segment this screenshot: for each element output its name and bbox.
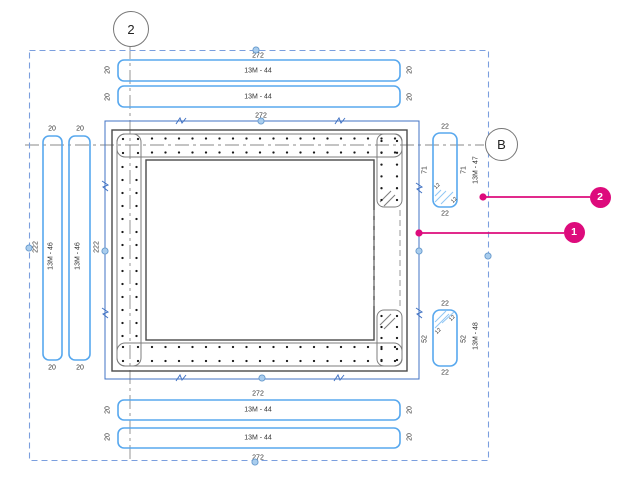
callout-balloon-2[interactable]: 2: [590, 187, 611, 208]
callout-1-anchor: [415, 229, 422, 236]
callout-2-anchor: [479, 193, 486, 200]
rebar-plan-drawing: 2 B 1 2 272 272 13M - 44 13M - 44 20 20 …: [0, 0, 632, 484]
rebar-break-symbol: [416, 183, 422, 193]
rebar-break-symbol: [102, 181, 108, 191]
callout-balloon-1-number: 1: [571, 226, 577, 238]
rebar-break-symbol: [334, 375, 344, 381]
selection-grip[interactable]: [26, 245, 32, 251]
selection-grip[interactable]: [253, 47, 259, 53]
rebar-break-symbol: [102, 308, 108, 318]
selection-grip[interactable]: [102, 248, 108, 254]
rebar-break-symbols: [102, 118, 422, 381]
rebar-break-symbol: [176, 375, 186, 381]
selection-grips: [26, 47, 491, 465]
rebar-break-symbol: [416, 308, 422, 318]
callout-balloon-1[interactable]: 1: [564, 222, 585, 243]
selection-grip[interactable]: [259, 375, 265, 381]
selection-grip[interactable]: [416, 248, 422, 254]
callout-balloon-2-number: 2: [597, 191, 603, 203]
annotation-overlay: [0, 0, 632, 484]
selection-grip[interactable]: [252, 459, 258, 465]
selection-grip[interactable]: [485, 253, 491, 259]
selection-grip[interactable]: [258, 118, 264, 124]
rebar-break-symbol: [176, 118, 186, 124]
rebar-break-symbol: [335, 118, 345, 124]
